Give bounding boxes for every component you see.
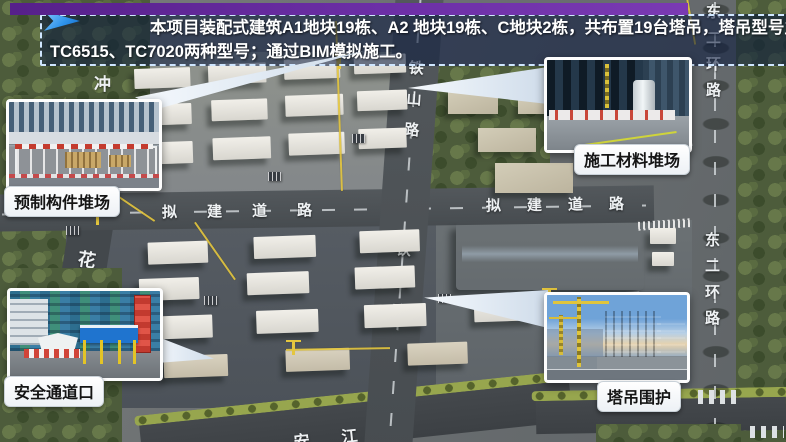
hoist-mast <box>605 64 609 108</box>
precast-yard-inset <box>6 99 162 191</box>
material-yard-label: 施工材料堆场 <box>574 144 690 175</box>
fence-rail <box>15 144 153 149</box>
barrier-strip <box>9 174 159 178</box>
trees-bottomcorner <box>596 424 741 442</box>
safety-canopy <box>80 325 138 343</box>
crane-mast <box>577 297 581 367</box>
precast-stack <box>65 152 101 168</box>
bim-site-plan: 花 冲 安江路 拟建道路 拟建道路 铁山路 铁山路 东二环路 东二环路 <box>0 0 786 442</box>
unit-marker <box>204 296 217 305</box>
building <box>650 228 676 244</box>
podium <box>597 357 687 369</box>
unit-marker <box>268 172 281 181</box>
northwest-road-label: 冲 <box>94 70 111 95</box>
crane-enclosure-label: 塔吊围护 <box>597 381 681 412</box>
block-c-building <box>456 222 644 290</box>
safety-gate-inset <box>7 288 163 381</box>
barrier-row <box>24 349 80 358</box>
crosswalk <box>750 426 784 438</box>
banner-line1: 本项目装配式建筑A1地块19栋、A2 地块19栋、C地块2栋，共布置19台塔吊，… <box>50 16 784 40</box>
material-yard-inset <box>544 57 692 153</box>
canopy-leg <box>133 340 136 364</box>
ring-road-label-south: 东二环路 <box>701 232 722 336</box>
backdrop-buildings <box>9 102 159 134</box>
unit-marker <box>352 134 365 143</box>
east-ring-road: 东二环路 东二环路 <box>686 0 742 442</box>
building <box>478 128 536 152</box>
crane-jib <box>549 317 579 319</box>
yard-fence <box>549 110 675 120</box>
crane-enclosure-inset <box>544 292 690 383</box>
crane-jib <box>553 301 609 304</box>
precast-yard-label: 预制构件堆场 <box>4 186 120 217</box>
crosswalk <box>698 390 742 404</box>
crane-mast <box>559 315 563 355</box>
precast-stack <box>109 155 131 167</box>
hoist-cage <box>134 295 151 353</box>
canopy-leg <box>118 340 121 364</box>
building <box>652 252 674 266</box>
safety-gate-label: 安全通道口 <box>4 376 104 407</box>
canopy-leg <box>83 340 86 364</box>
canopy-leg <box>100 340 103 364</box>
proposed-road-label-east: 拟建道路 <box>486 192 650 215</box>
proposed-road-label-west: 拟建道路 <box>162 199 342 223</box>
top-purple-bar <box>10 3 688 15</box>
unit-marker <box>66 226 79 235</box>
distant-buildings <box>547 329 603 357</box>
building <box>495 163 573 193</box>
tower-crane-marker <box>292 342 295 355</box>
trees-right-forest <box>736 0 786 442</box>
ground <box>547 369 687 381</box>
